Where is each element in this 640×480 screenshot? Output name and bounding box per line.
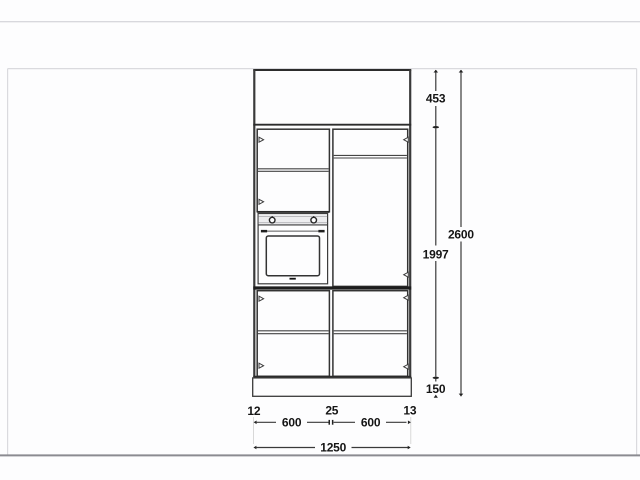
svg-text:25: 25 bbox=[325, 403, 338, 417]
svg-text:2600: 2600 bbox=[448, 227, 474, 241]
svg-text:600: 600 bbox=[361, 416, 381, 430]
svg-text:600: 600 bbox=[282, 416, 302, 430]
svg-text:150: 150 bbox=[426, 382, 446, 396]
svg-text:1250: 1250 bbox=[320, 441, 346, 455]
svg-text:12: 12 bbox=[247, 404, 260, 418]
svg-text:453: 453 bbox=[426, 92, 446, 106]
svg-text:13: 13 bbox=[403, 404, 416, 418]
svg-text:1997: 1997 bbox=[423, 247, 449, 261]
